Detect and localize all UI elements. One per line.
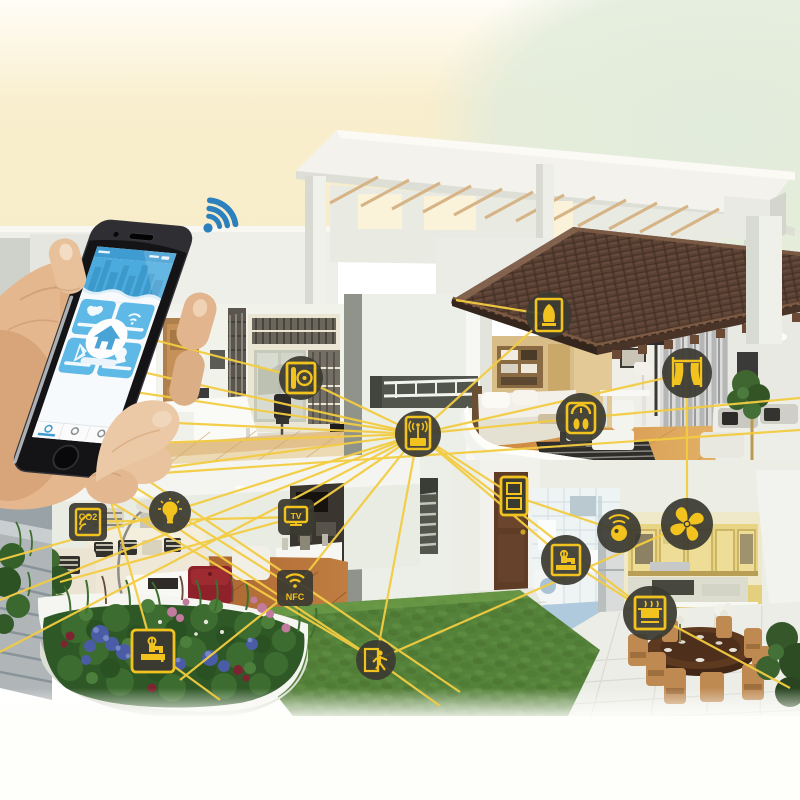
svg-text:TV: TV xyxy=(291,511,302,521)
svg-text:NFC: NFC xyxy=(286,592,305,602)
